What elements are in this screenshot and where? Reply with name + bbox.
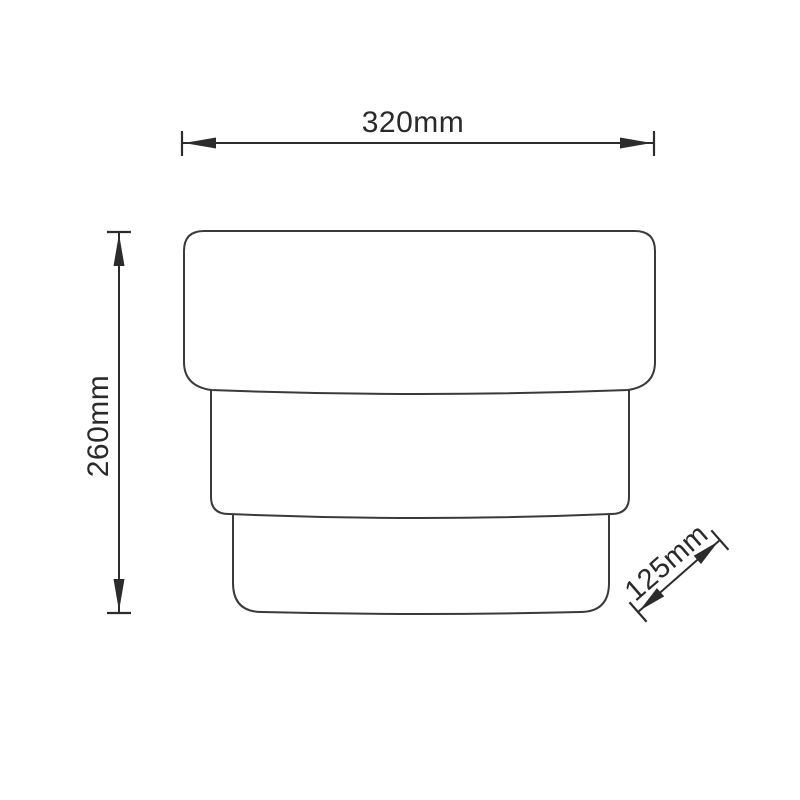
height-dimension-label: 260mm [82, 375, 115, 478]
product-top-tier [184, 231, 655, 394]
product-outline [184, 231, 655, 614]
product-middle-tier [211, 375, 629, 518]
depth-dimension: 125mm [616, 515, 729, 622]
product-bottom-tier [233, 505, 609, 614]
height-dimension-arrowhead-top [114, 234, 125, 266]
width-dimension-arrowhead-right [620, 138, 652, 149]
dimension-diagram: 320mm 260mm 125mm [0, 0, 800, 800]
width-dimension-label: 320mm [362, 106, 465, 139]
width-dimension: 320mm [182, 106, 654, 156]
height-dimension: 260mm [82, 232, 131, 613]
width-dimension-arrowhead-left [184, 138, 216, 149]
height-dimension-arrowhead-bottom [114, 579, 125, 611]
dimension-diagram-page: 320mm 260mm 125mm [0, 0, 800, 800]
